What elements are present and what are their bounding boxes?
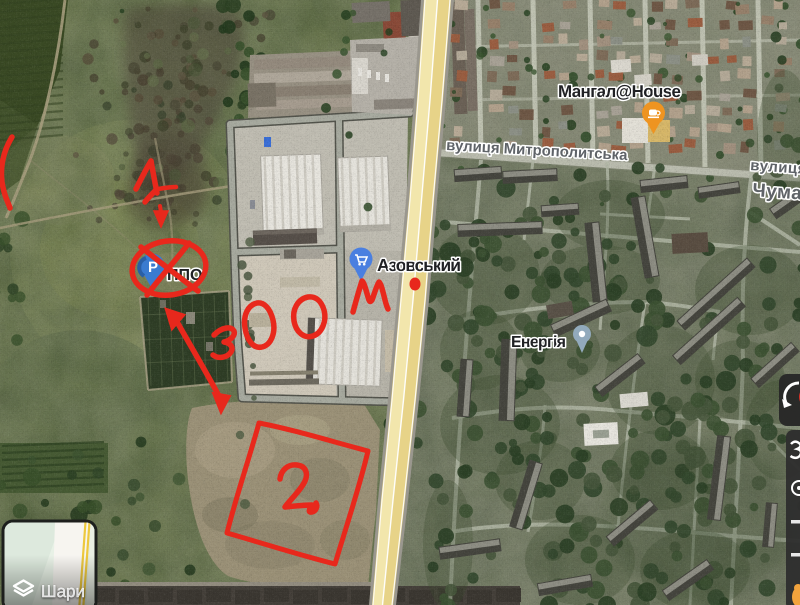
svg-text:Азовський: Азовський [377, 255, 461, 275]
svg-text:Шари: Шари [41, 582, 85, 601]
svg-text:Мангал@House: Мангал@House [558, 82, 681, 101]
svg-text:Енергія: Енергія [511, 334, 566, 351]
